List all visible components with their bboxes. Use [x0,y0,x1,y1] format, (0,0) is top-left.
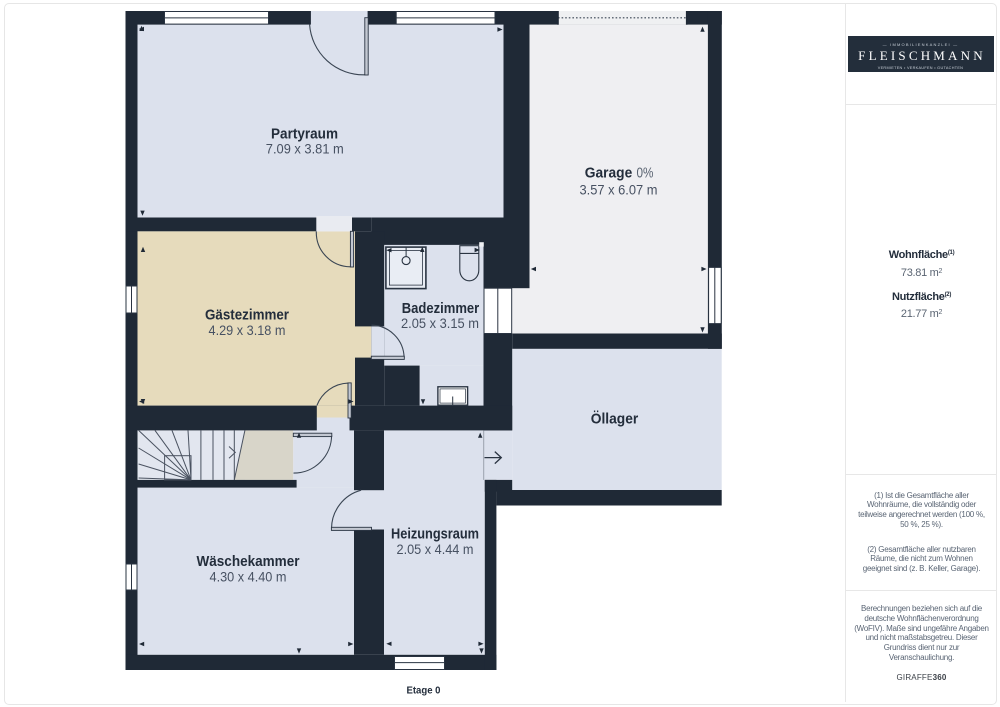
svg-text:Garage: Garage [585,166,633,182]
svg-text:2.05 x 3.15 m: 2.05 x 3.15 m [401,316,479,331]
svg-text:4.29 x 3.18 m: 4.29 x 3.18 m [209,323,286,338]
svg-text:0%: 0% [637,166,654,182]
svg-text:Partyraum: Partyraum [271,126,338,143]
svg-text:Wäschekammer: Wäschekammer [197,553,300,570]
svg-text:3.57 x 6.07 m: 3.57 x 6.07 m [580,183,658,198]
svg-text:2.05 x 4.44 m: 2.05 x 4.44 m [397,542,474,557]
svg-text:Heizungsraum: Heizungsraum [391,526,479,543]
svg-text:Badezimmer: Badezimmer [402,300,480,317]
svg-text:4.30 x 4.40 m: 4.30 x 4.40 m [210,570,287,585]
svg-text:7.09 x 3.81 m: 7.09 x 3.81 m [266,142,344,157]
svg-text:Etage 0: Etage 0 [407,685,441,697]
svg-text:Gästezimmer: Gästezimmer [205,307,289,324]
svg-text:Öllager: Öllager [591,411,639,428]
